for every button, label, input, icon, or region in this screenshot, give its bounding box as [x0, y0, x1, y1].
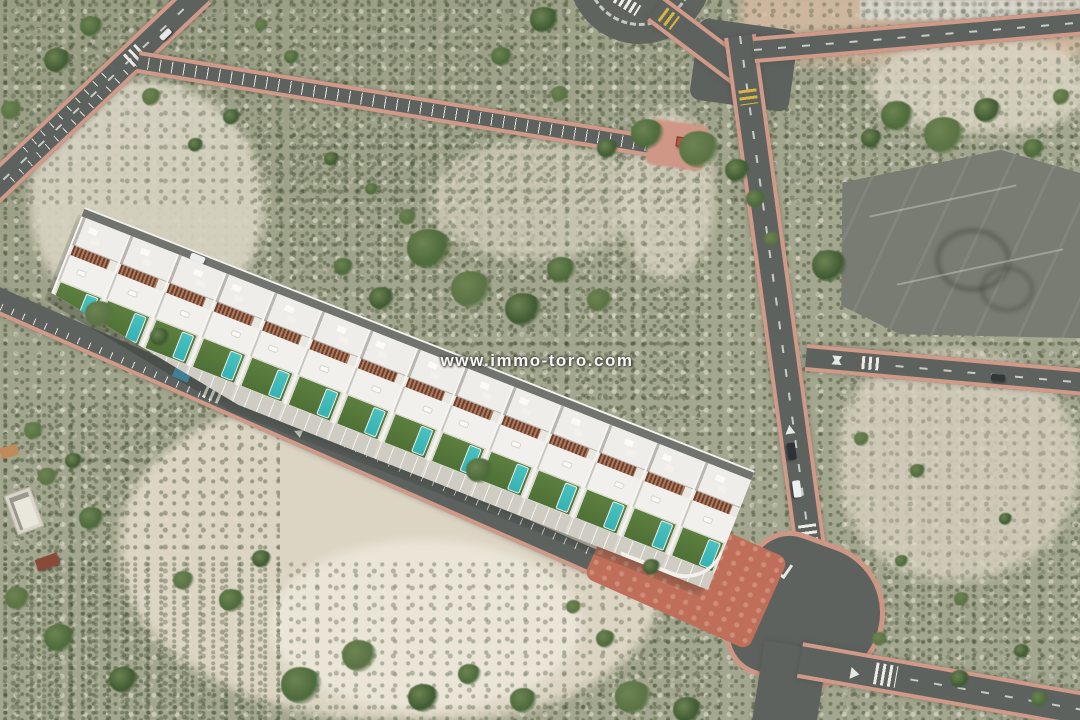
rooftop-unit [193, 269, 204, 278]
terrace-furniture [230, 330, 242, 339]
rooftop-unit [427, 361, 438, 370]
skid-mark-circle [980, 266, 1034, 312]
rooftop-unit [714, 474, 725, 483]
rooftop-unit [140, 248, 151, 257]
rooftop-unit [480, 382, 491, 391]
rooftop-unit [662, 453, 673, 462]
give-way-triangle [831, 356, 842, 365]
terrace-furniture [370, 385, 382, 394]
rooftop-unit [571, 418, 582, 427]
rooftop-unit [231, 284, 242, 293]
rooftop-unit [518, 397, 529, 406]
terrace-furniture [510, 440, 522, 449]
crosswalk [873, 662, 898, 687]
plaza-line [869, 184, 1016, 217]
terrace-furniture [179, 309, 191, 318]
terrace-furniture [458, 419, 470, 428]
rooftop-unit [375, 340, 386, 349]
terrace-furniture [127, 289, 139, 298]
crosswalk-yellow [738, 88, 758, 105]
terrace-furniture [267, 344, 279, 353]
rooftop-unit [336, 325, 347, 334]
rooftop-unit [284, 304, 295, 313]
terrace-furniture [562, 460, 574, 469]
watermark-text: www.immo-toro.com [441, 351, 634, 371]
lane-arrow [784, 424, 795, 434]
terrace-furniture [319, 364, 331, 373]
aerial-photo: www.immo-toro.com [0, 0, 1080, 720]
crosswalk-yellow [658, 7, 680, 29]
crosswalk [861, 356, 879, 370]
give-way-triangle [849, 667, 860, 680]
rooftop-unit [88, 227, 99, 236]
terrace-furniture [701, 515, 713, 524]
terrace-furniture [613, 480, 625, 489]
center-dashes [896, 365, 1080, 384]
terrace-furniture [422, 405, 434, 414]
terrace-furniture [650, 495, 662, 504]
asphalt-plaza [840, 148, 1080, 340]
terrace-furniture [76, 269, 88, 278]
dark-vehicle [991, 374, 1006, 382]
rooftop-unit [623, 438, 634, 447]
